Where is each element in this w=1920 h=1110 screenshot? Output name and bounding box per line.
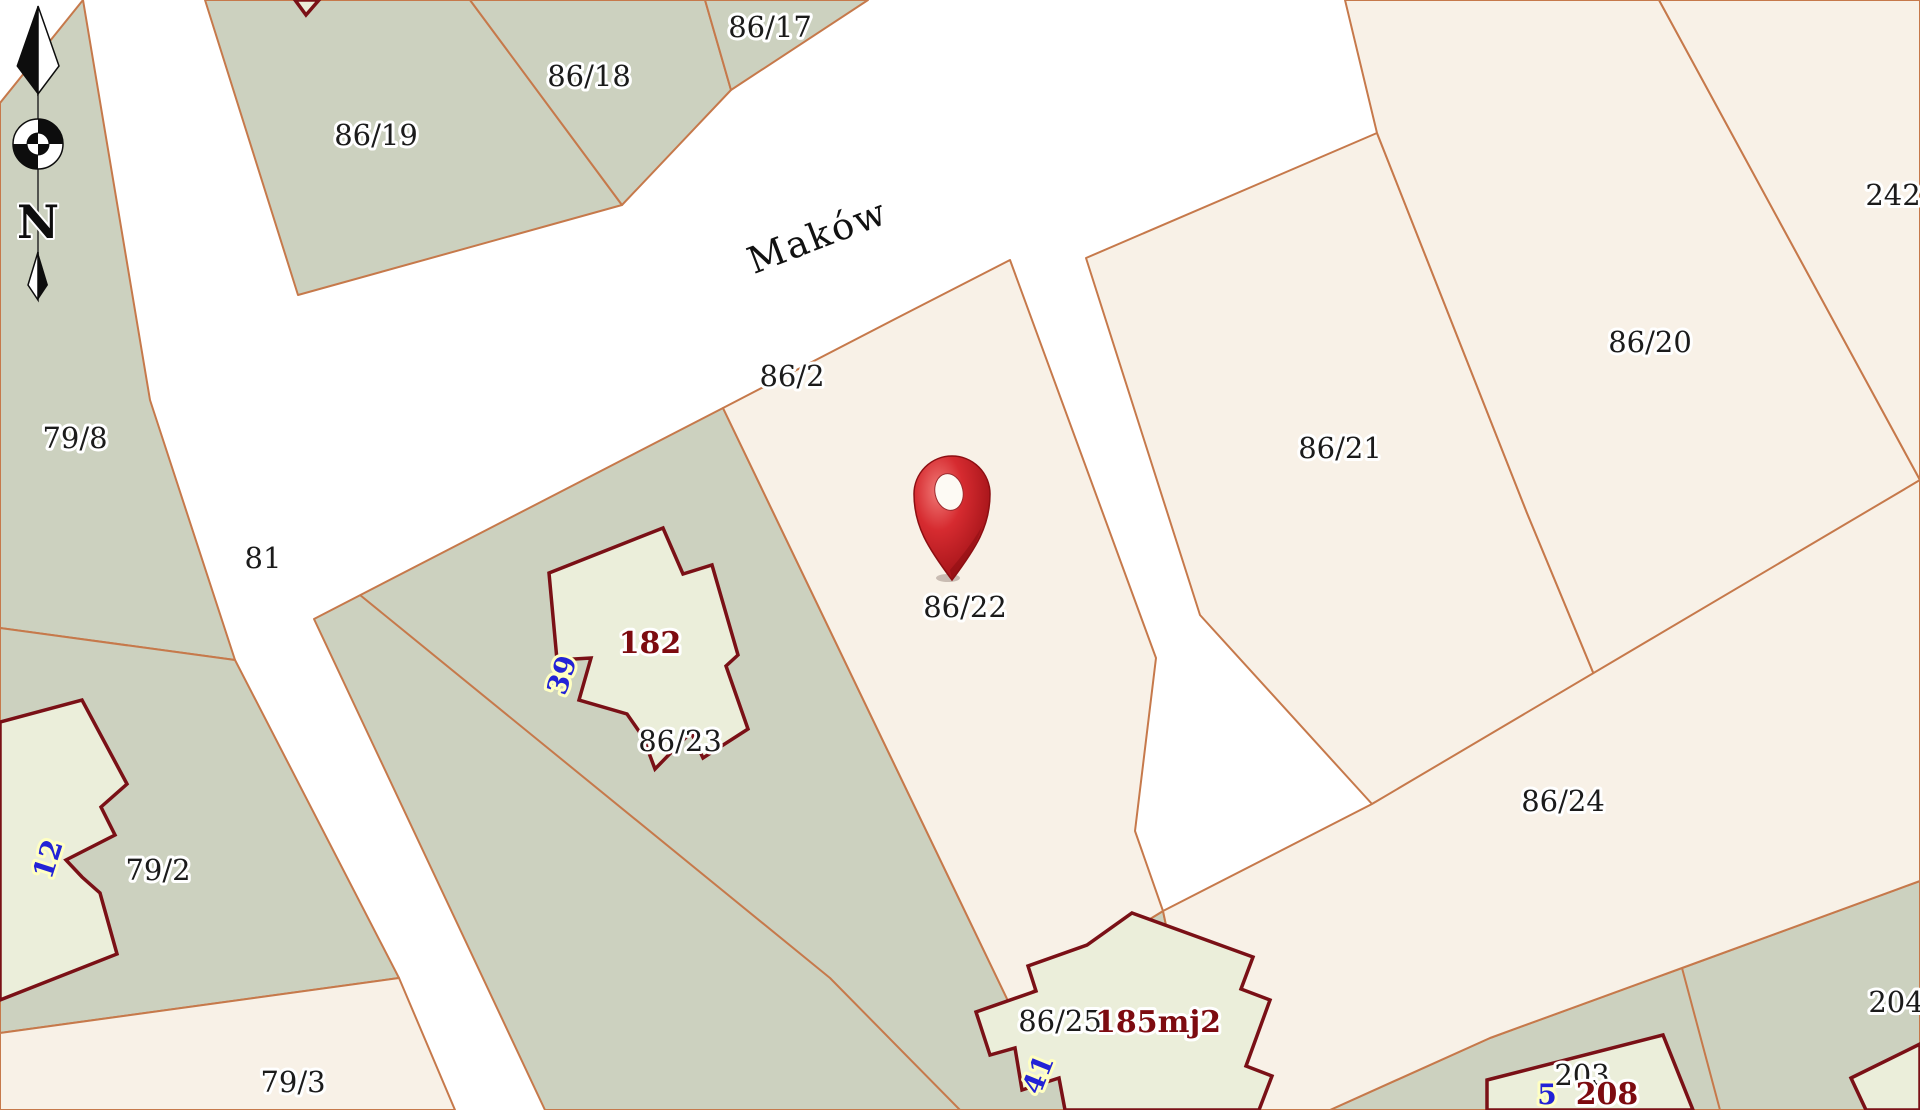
parcel-label-204: 204 bbox=[1868, 985, 1920, 1019]
parcel-label-242: 242 bbox=[1865, 178, 1920, 212]
building-label-185mj2: 185mj2 bbox=[1095, 1005, 1221, 1040]
parcel-label-86/17: 86/17 bbox=[728, 10, 812, 44]
parcel-label-81: 81 bbox=[245, 541, 282, 575]
parcel-label-86/20: 86/20 bbox=[1608, 325, 1692, 359]
building-label-182: 182 bbox=[619, 626, 682, 661]
parcel-label-86/18: 86/18 bbox=[547, 59, 631, 93]
parcel-label-79/3: 79/3 bbox=[260, 1065, 325, 1099]
building-label-208: 208 bbox=[1576, 1077, 1639, 1110]
parcel-label-86/21: 86/21 bbox=[1298, 431, 1382, 465]
cadastral-map[interactable]: 86/1986/1886/1779/88179/279/386/286/2286… bbox=[0, 0, 1920, 1110]
compass-n-letter: N bbox=[17, 195, 59, 249]
address-label-5: 5 bbox=[1537, 1078, 1556, 1110]
cadastral-map-viewport: 86/1986/1886/1779/88179/279/386/286/2286… bbox=[0, 0, 1920, 1110]
parcel-label-79/2: 79/2 bbox=[125, 853, 190, 887]
parcel-label-86/19: 86/19 bbox=[334, 118, 418, 152]
parcel-label-86/22: 86/22 bbox=[923, 590, 1007, 624]
parcel-label-86/24: 86/24 bbox=[1521, 784, 1605, 818]
parcel-label-86/2: 86/2 bbox=[759, 359, 824, 393]
parcel-label-86/23: 86/23 bbox=[638, 724, 722, 758]
parcel-label-79/8: 79/8 bbox=[42, 421, 107, 455]
parcel-label-86/25: 86/25 bbox=[1018, 1004, 1102, 1038]
